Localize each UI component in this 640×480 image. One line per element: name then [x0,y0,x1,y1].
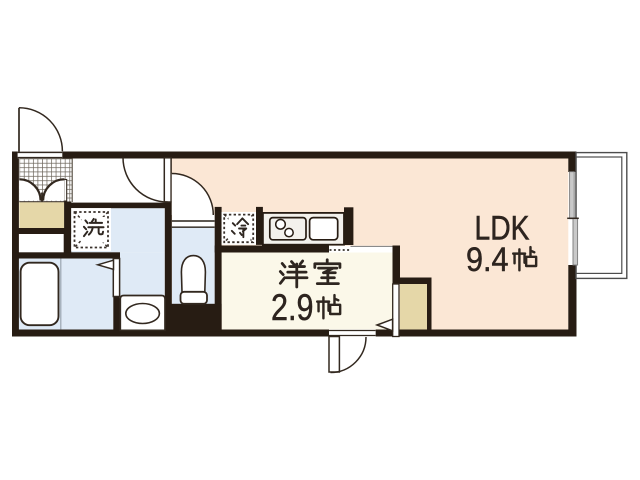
svg-text:2.9: 2.9 [271,287,314,328]
svg-text:9.4: 9.4 [466,241,509,279]
